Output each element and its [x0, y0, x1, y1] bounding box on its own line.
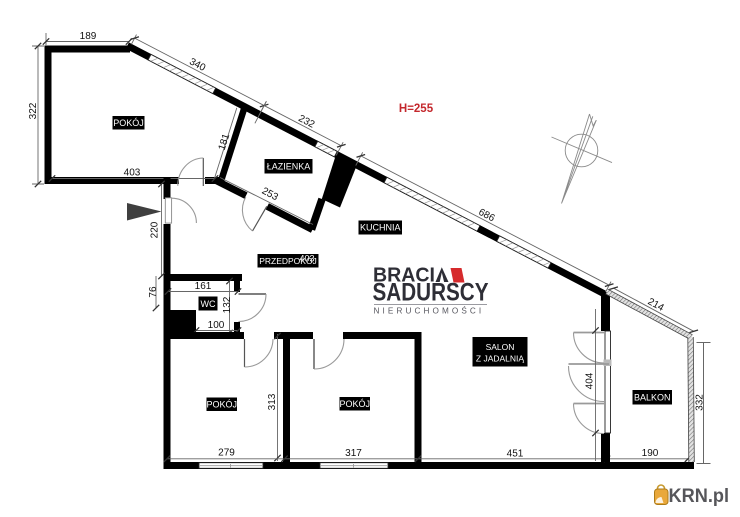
- svg-text:189: 189: [80, 31, 97, 42]
- svg-text:H=255: H=255: [399, 103, 434, 115]
- svg-text:403: 403: [124, 168, 141, 179]
- svg-text:Z JADALNIĄ: Z JADALNIĄ: [476, 354, 525, 364]
- svg-text:KUCHNIA: KUCHNIA: [360, 223, 401, 233]
- svg-text:340: 340: [187, 56, 207, 74]
- svg-text:332: 332: [695, 394, 706, 411]
- svg-text:POKÓJ: POKÓJ: [206, 400, 237, 410]
- svg-text:404: 404: [585, 372, 596, 389]
- svg-text:POKÓJ: POKÓJ: [113, 118, 144, 128]
- svg-text:POKÓJ: POKÓJ: [339, 399, 370, 409]
- svg-text:100: 100: [208, 320, 225, 331]
- svg-text:220: 220: [150, 221, 161, 238]
- svg-text:451: 451: [507, 449, 524, 460]
- svg-text:BALKON: BALKON: [634, 393, 671, 403]
- svg-text:132: 132: [222, 296, 233, 313]
- svg-text:313: 313: [267, 393, 278, 410]
- svg-text:NIERUCHOMOŚCI: NIERUCHOMOŚCI: [374, 305, 485, 316]
- svg-text:686: 686: [476, 207, 496, 225]
- svg-text:ŁAZIENKA: ŁAZIENKA: [267, 162, 311, 172]
- svg-text:253: 253: [260, 186, 280, 204]
- svg-text:76: 76: [148, 286, 159, 298]
- svg-text:KRN.pl: KRN.pl: [669, 485, 730, 507]
- svg-text:SALON: SALON: [486, 342, 515, 352]
- svg-text:322: 322: [28, 102, 39, 119]
- svg-text:403: 403: [299, 254, 314, 264]
- svg-text:190: 190: [642, 448, 659, 459]
- svg-text:279: 279: [218, 448, 235, 459]
- svg-text:161: 161: [195, 281, 212, 292]
- svg-text:WC: WC: [201, 299, 216, 309]
- svg-text:232: 232: [296, 113, 316, 131]
- svg-text:SADURSCY: SADURSCY: [373, 279, 489, 307]
- svg-text:317: 317: [345, 448, 362, 459]
